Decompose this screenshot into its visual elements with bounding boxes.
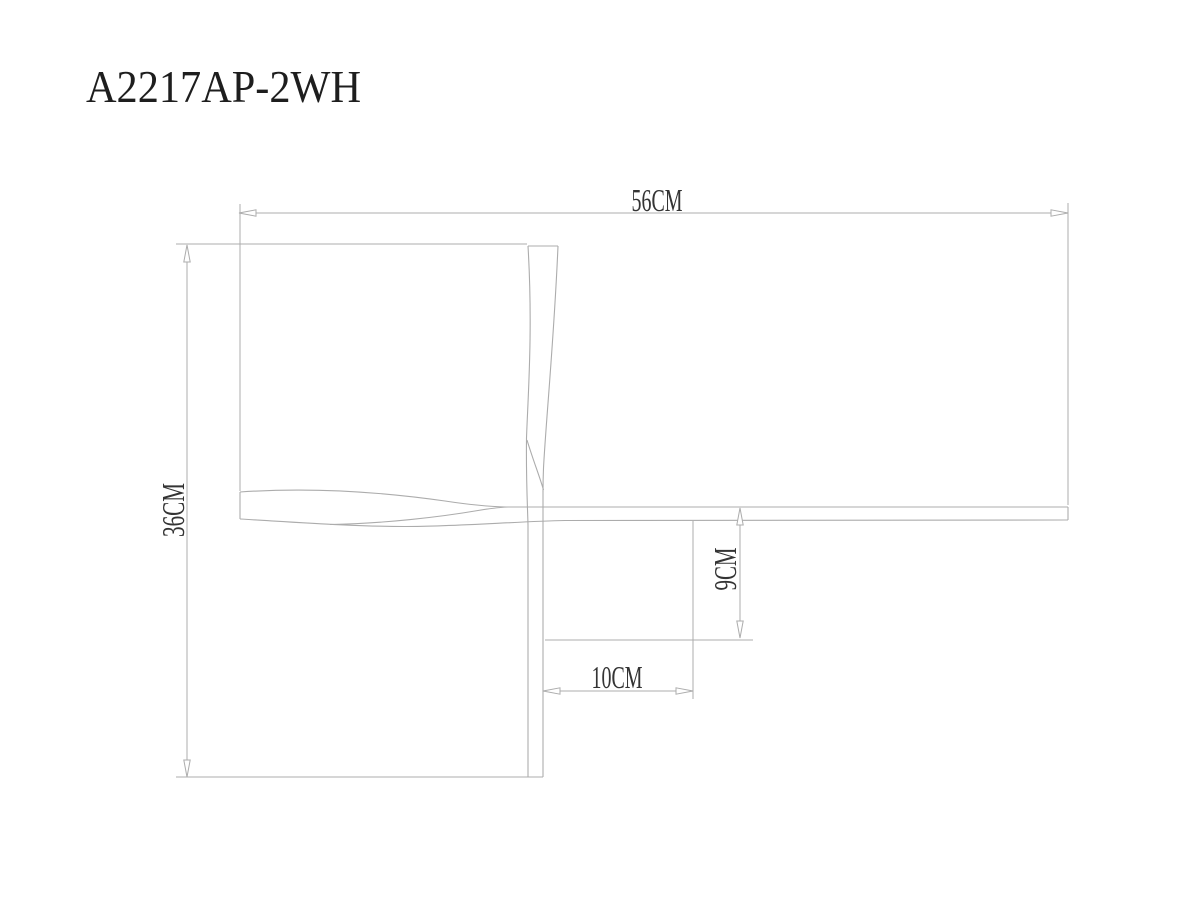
dimension-label-height: 36CM [155, 483, 191, 537]
dimension-vertical-offset: 9CM [545, 508, 753, 640]
width-arrowhead-left [239, 210, 256, 216]
dimension-label-vertical-offset: 9CM [707, 548, 743, 591]
horizontal-blade-top-edge [240, 490, 1068, 507]
vertical-blade-right-edge [543, 246, 558, 777]
dimension-width: 56CM [239, 182, 1068, 505]
dimension-horizontal-offset: 10CM [543, 521, 693, 699]
dimension-label-horizontal-offset: 10CM [592, 659, 643, 695]
dimension-label-width: 56CM [632, 182, 683, 218]
vertical-blade-left-edge [526, 246, 530, 777]
horizontal-blade-twist-edge [330, 507, 508, 525]
vertical-offset-arrowhead-top [737, 508, 743, 525]
height-arrowhead-top [184, 245, 190, 262]
horizontal-offset-arrowhead-left [543, 688, 560, 694]
drawing-canvas: A2217AP-2WH 56CM [0, 0, 1200, 900]
horizontal-offset-arrowhead-right [676, 688, 693, 694]
dimension-drawing: 56CM 36CM 9CM 10CM [0, 0, 1200, 900]
width-arrowhead-right [1051, 210, 1068, 216]
height-arrowhead-bottom [184, 760, 190, 777]
vertical-blade-twist-edge [527, 440, 544, 490]
lamp-outline [240, 246, 1068, 777]
vertical-offset-arrowhead-bottom [737, 621, 743, 638]
dimension-height: 36CM [155, 244, 543, 777]
